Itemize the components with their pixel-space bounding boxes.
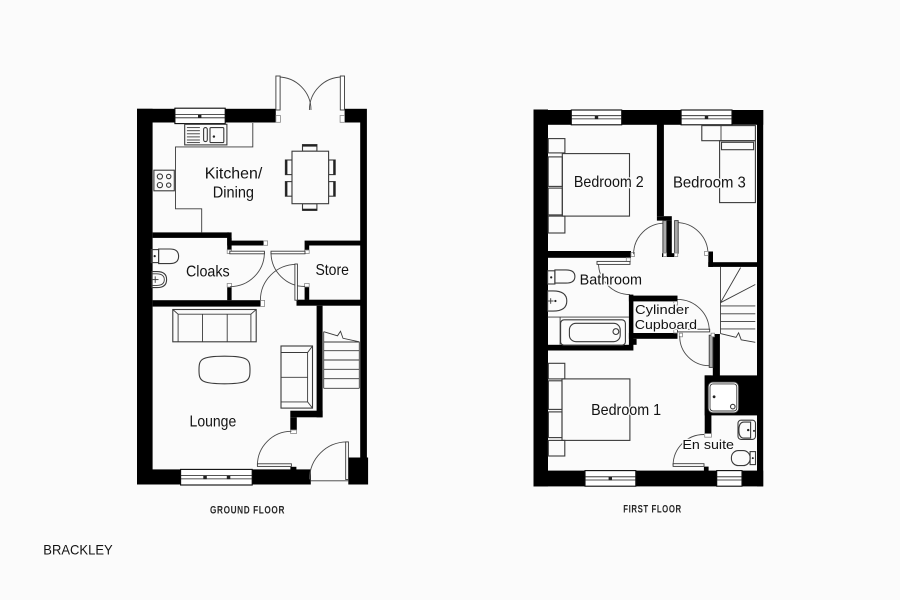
svg-text:Bedroom 2: Bedroom 2 (574, 174, 644, 191)
svg-text:Bathroom: Bathroom (580, 272, 642, 288)
svg-text:GROUND FLOOR: GROUND FLOOR (210, 504, 285, 516)
svg-text:Cylinder: Cylinder (635, 302, 690, 317)
svg-text:Store: Store (315, 262, 349, 279)
svg-text:Bedroom 1: Bedroom 1 (591, 402, 661, 419)
svg-text:Bedroom 3: Bedroom 3 (673, 175, 746, 192)
svg-text:Dining: Dining (213, 184, 254, 201)
svg-text:Kitchen/: Kitchen/ (205, 165, 263, 182)
svg-text:Cloaks: Cloaks (186, 264, 230, 281)
svg-text:FIRST FLOOR: FIRST FLOOR (623, 504, 681, 516)
svg-text:BRACKLEY: BRACKLEY (43, 542, 112, 557)
svg-text:Lounge: Lounge (190, 414, 237, 431)
svg-text:En suite: En suite (682, 437, 734, 452)
svg-text:Cupboard: Cupboard (635, 317, 697, 332)
